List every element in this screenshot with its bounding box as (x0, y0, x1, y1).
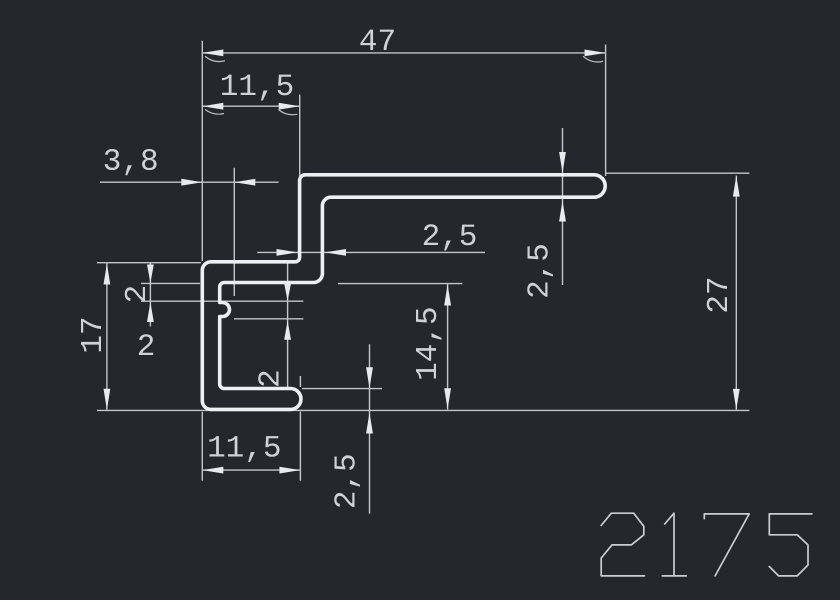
svg-text:11,5: 11,5 (207, 431, 281, 466)
svg-text:3,8: 3,8 (103, 145, 159, 180)
svg-text:2,5: 2,5 (523, 243, 558, 299)
svg-text:2,5: 2,5 (330, 453, 365, 509)
svg-text:47: 47 (359, 25, 396, 60)
svg-text:2: 2 (120, 285, 155, 304)
svg-text:2,5: 2,5 (422, 220, 478, 255)
svg-text:2: 2 (254, 369, 289, 388)
svg-text:27: 27 (702, 276, 737, 313)
svg-text:11,5: 11,5 (220, 70, 294, 105)
svg-text:14,5: 14,5 (411, 306, 446, 380)
svg-text:17: 17 (76, 316, 111, 353)
svg-text:2: 2 (137, 330, 156, 365)
